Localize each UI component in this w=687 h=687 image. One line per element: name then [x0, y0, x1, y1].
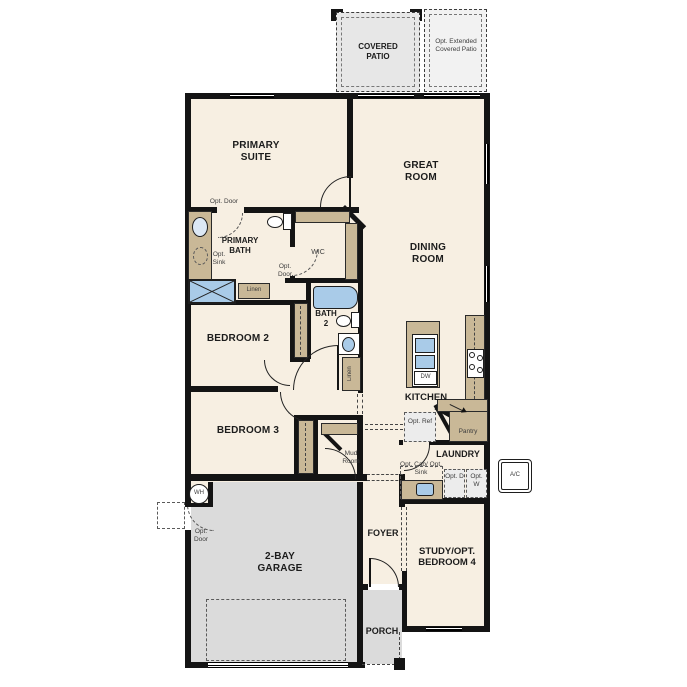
floor-plan: COVERED PATIO Opt. Extended Covered Pati… [0, 0, 687, 687]
wall-study-left-lower [402, 571, 407, 628]
window-great-room-right [485, 144, 489, 184]
mud-room-label: Mud Room [336, 450, 366, 466]
bedroom3-closet-rod [305, 423, 306, 471]
opt-door-stoop-dashed [157, 502, 185, 529]
burner-1 [469, 352, 475, 358]
wic-shelf-top [295, 211, 350, 223]
opt-sink-label: Opt. Sink [207, 251, 231, 267]
dishwasher: DW [414, 371, 437, 385]
bath1-opt-sink [193, 247, 208, 265]
laundry-label: LAUNDRY [430, 449, 486, 460]
porch-post [394, 658, 405, 670]
bath2-tub [313, 286, 358, 309]
kitchen-label: KITCHEN [398, 392, 454, 403]
bath2-sink [342, 337, 355, 352]
bedroom2-closet [294, 303, 308, 358]
opening-dash-mudhall-2 [365, 429, 403, 430]
opt-door-garage-label: Opt. Door [189, 528, 213, 544]
primary-suite-label: PRIMARY SUITE [225, 140, 287, 164]
great-room-label: GREAT ROOM [394, 160, 448, 184]
garage-door [208, 662, 348, 668]
wall-closet3-right [314, 417, 318, 476]
opt-extended-patio-label: Opt. Extended Covered Patio [428, 38, 484, 54]
water-heater-label: WH [189, 490, 209, 497]
study-label: STUDY/OPT. BEDROOM 4 [405, 546, 489, 569]
mudroom-bench [321, 423, 358, 435]
wic-label: WIC [303, 249, 333, 258]
dishwasher-label: DW [421, 374, 431, 381]
slider-great-room-1 [358, 94, 414, 98]
bedroom2-label: BEDROOM 2 [192, 333, 284, 345]
laundry-sink [416, 483, 434, 496]
window-study [426, 627, 462, 631]
covered-patio-label: COVERED PATIO [346, 42, 410, 61]
hall-linen-label: Linen [347, 360, 357, 388]
toilet1-tank [283, 213, 292, 230]
toilet1-bowl [267, 216, 283, 228]
wall-left [185, 93, 191, 668]
opt-door-bath-label: Opt. Door [205, 198, 243, 206]
garage-apron-dashed [206, 599, 346, 661]
island-sink-1 [415, 338, 435, 353]
window-primary-suite [230, 94, 274, 98]
pantry-area [449, 411, 488, 442]
burner-3 [469, 364, 475, 370]
door-leaf-front [369, 558, 371, 587]
garage-label: 2-BAY GARAGE [246, 551, 314, 575]
opt-dryer-label: Opt. D [445, 473, 464, 481]
pantry-label: Pantry [450, 428, 486, 436]
island-sink-2 [415, 355, 435, 369]
wall-bedroom2-bottom [185, 386, 278, 392]
wall-suite-greatroom [347, 93, 353, 178]
window-dining-right [485, 266, 489, 302]
burner-4 [477, 367, 483, 373]
opening-dash-study-1 [401, 507, 402, 571]
door-leaf-primary-suite [349, 177, 351, 207]
foyer-label: FOYER [363, 528, 403, 539]
opt-washer-label: Opt. W [467, 473, 486, 489]
bedroom2-closet-rod [300, 306, 301, 355]
wic-shelf-right [345, 223, 358, 280]
slider-great-room-2 [424, 94, 480, 98]
opt-ref-label: Opt. Ref [406, 418, 434, 426]
porch-label: PORCH [362, 626, 402, 637]
ac-label: A/C [498, 472, 532, 479]
bedroom3-label: BEDROOM 3 [198, 425, 298, 437]
bath1-sink [192, 217, 208, 237]
dining-room-label: DINING ROOM [399, 242, 457, 266]
opt-cab-sink-label: Opt. Cab/ Opt. Sink [398, 461, 444, 477]
bath1-shower [188, 279, 236, 304]
opening-dash-hall-2 [362, 394, 363, 414]
bedroom3-closet [298, 420, 314, 474]
opening-dash-hall-1 [357, 394, 358, 414]
wall-garage-right [357, 482, 363, 668]
bath1-linen-label: Linen [238, 287, 270, 294]
opt-door-wic-label: Opt. Door [273, 263, 297, 279]
shower-x-glyph [190, 281, 234, 302]
toilet2-tank [351, 312, 360, 328]
opening-dash-mudhall-1 [365, 424, 403, 425]
opening-dash-foyer-2 [367, 480, 403, 481]
opt-ref-box [404, 412, 436, 442]
bath2-label: BATH 2 [312, 309, 340, 328]
burner-2 [477, 355, 483, 361]
